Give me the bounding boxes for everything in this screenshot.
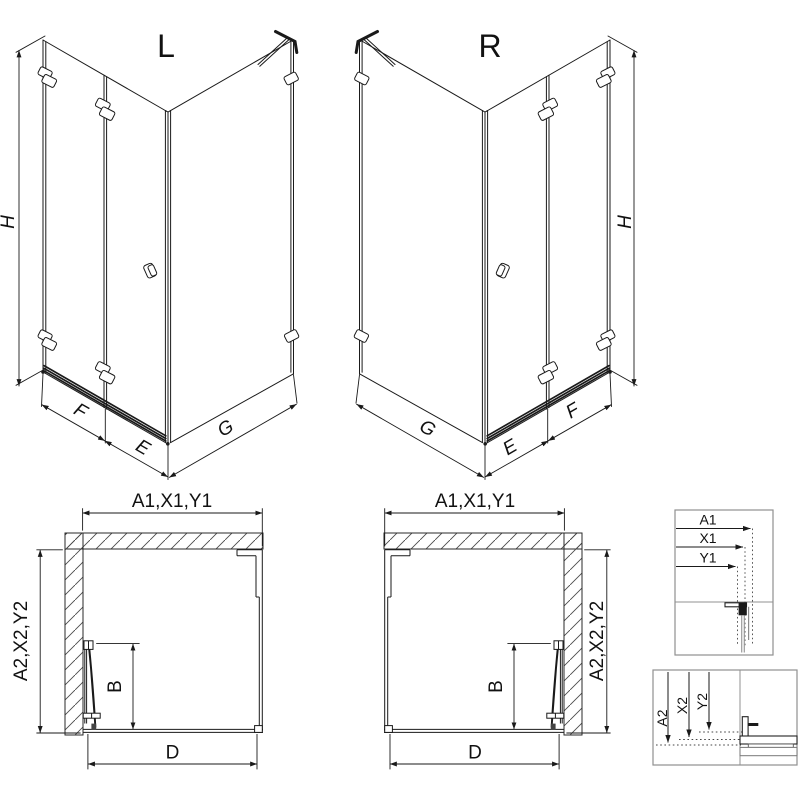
detail-panel-depth-dims: A2 X2 Y2 [653,670,797,765]
detail-label-y2: Y2 [694,693,710,710]
wall-top-left-plan [65,533,263,549]
dim-label-b-right-plan: B [486,680,507,693]
detail-width-frame [675,510,773,655]
detail-label-x2: X2 [674,697,690,714]
detail-depth-reference-lines [656,732,749,745]
variant-label-right: R [478,28,501,64]
dim-label-a2-left-plan: A2,X2,Y2 [11,601,32,681]
shower-enclosure-drawing: L H F E G R H G E F A1,X1,Y1 A2,X2,Y2 B … [0,0,800,800]
detail-label-x1: X1 [699,530,716,546]
dim-label-e-right: E [500,435,522,460]
dim-label-e-left: E [132,435,154,460]
iso-left-drawing [16,32,299,480]
detail-label-y1: Y1 [699,550,716,566]
dim-label-b-left-plan: B [105,680,126,693]
wall-side-right-plan [564,533,582,735]
dim-label-g-left: G [214,416,237,442]
dim-label-d-right-plan: D [468,743,482,764]
detail-label-a2: A2 [654,709,670,726]
detail-depth-profile [740,717,797,756]
dim-label-a1-right-plan: A1,X1,Y1 [435,491,515,512]
dim-label-h-left: H [0,215,19,229]
detail-panel-width-dims: A1 X1 Y1 [675,510,773,655]
variant-label-left: L [157,28,175,64]
detail-width-reference-lines [738,529,753,647]
dim-label-a2-right-plan: A2,X2,Y2 [587,601,608,681]
iso-right-drawing [354,32,637,480]
dim-label-d-left-plan: D [166,743,180,764]
dim-label-f-left: F [70,399,92,424]
dim-label-g-right: G [416,416,439,442]
dim-label-f-right: F [562,399,584,424]
diagram-canvas: L H F E G R H G E F A1,X1,Y1 A2,X2,Y2 B … [0,0,800,800]
plan-view-right: A1,X1,Y1 A2,X2,Y2 B D [384,491,611,769]
dim-label-a1-left-plan: A1,X1,Y1 [132,491,212,512]
plan-view-left: A1,X1,Y1 A2,X2,Y2 B D [11,491,263,769]
wall-side-left-plan [65,533,83,735]
dim-label-h-right: H [615,215,636,229]
iso-view-left: L H F E G [0,28,299,480]
detail-label-a1: A1 [699,512,716,528]
wall-top-right-plan [384,533,582,549]
iso-view-right: R H G E F [354,28,637,480]
